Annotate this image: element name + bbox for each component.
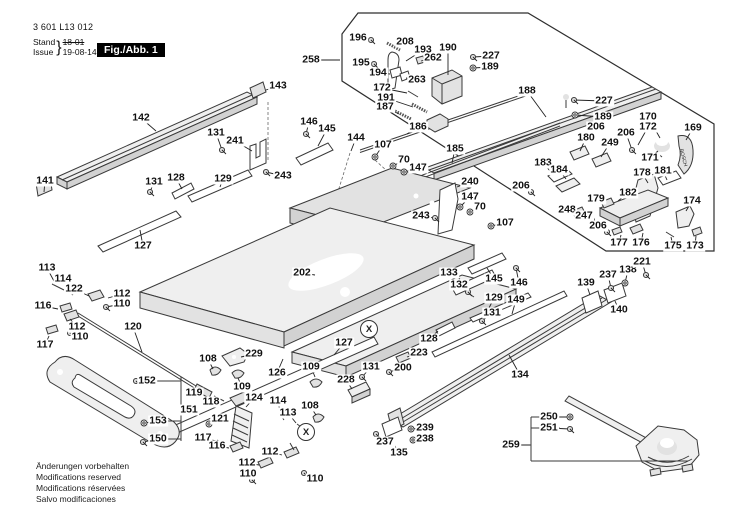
- part-label-146: 146: [299, 116, 319, 127]
- part-label-262: 262: [423, 52, 443, 63]
- part-label-116: 116: [34, 300, 53, 311]
- part-label-131: 131: [482, 307, 502, 318]
- revision-new-value: 19-08-14: [63, 48, 97, 58]
- part-label-202: 202: [292, 267, 312, 278]
- part-label-179: 179: [586, 193, 606, 204]
- part-label-206: 206: [511, 180, 531, 191]
- part-label-200: 200: [393, 362, 413, 373]
- part-label-108: 108: [198, 353, 218, 364]
- part-label-186: 186: [408, 121, 428, 132]
- part-label-120: 120: [123, 321, 143, 332]
- part-label-173: 173: [685, 240, 705, 251]
- part-label-259: 259: [501, 439, 521, 450]
- part-label-146: 146: [509, 277, 529, 288]
- part-label-124: 124: [244, 392, 264, 403]
- part-label-129: 129: [213, 173, 233, 184]
- part-label-238: 238: [415, 433, 435, 444]
- part-label-110: 110: [306, 473, 325, 484]
- part-label-110: 110: [113, 298, 132, 309]
- connector-x-symbol: X: [297, 423, 315, 441]
- part-label-118: 118: [202, 396, 221, 407]
- part-label-142: 142: [131, 112, 151, 123]
- legal-line-es: Salvo modificaciones: [36, 494, 129, 505]
- part-label-128: 128: [166, 172, 186, 183]
- part-label-194: 194: [368, 67, 388, 78]
- part-label-169: 169: [683, 122, 703, 133]
- part-label-258: 258: [301, 54, 321, 65]
- part-label-152: 152: [137, 375, 157, 386]
- part-label-144: 144: [346, 132, 366, 143]
- title-block: 3 601 L13 012 Stand Issue } 18-01 19-08-…: [33, 22, 97, 58]
- part-label-178: 178: [632, 167, 652, 178]
- part-label-240: 240: [460, 176, 480, 187]
- part-label-122: 122: [64, 283, 84, 294]
- revision-label-en: Issue: [33, 48, 55, 58]
- figure-badge: Fig./Abb. 1: [97, 43, 165, 57]
- part-label-223: 223: [409, 347, 429, 358]
- part-label-150: 150: [148, 433, 168, 444]
- part-label-140: 140: [609, 304, 629, 315]
- connector-x-symbol: X: [360, 320, 378, 338]
- part-label-135: 135: [389, 447, 409, 458]
- legal-line-de: Änderungen vorbehalten: [36, 461, 129, 472]
- part-label-153: 153: [148, 415, 168, 426]
- legal-line-en: Modifications reserved: [36, 472, 129, 483]
- part-label-249: 249: [600, 137, 620, 148]
- part-label-131: 131: [206, 127, 226, 138]
- revision-brace: }: [56, 39, 61, 57]
- legal-notice: Änderungen vorbehalten Modifications res…: [36, 461, 129, 505]
- part-label-139: 139: [576, 277, 596, 288]
- part-label-116: 116: [208, 440, 227, 451]
- part-label-243: 243: [411, 210, 431, 221]
- part-label-147: 147: [408, 162, 428, 173]
- part-label-117: 117: [36, 339, 55, 350]
- part-label-131: 131: [361, 361, 381, 372]
- part-label-251: 251: [539, 422, 559, 433]
- part-label-263: 263: [407, 74, 427, 85]
- part-label-206: 206: [616, 127, 636, 138]
- part-label-127: 127: [133, 240, 153, 251]
- revision-block: Stand Issue } 18-01 19-08-14: [33, 38, 97, 58]
- part-label-229: 229: [244, 348, 264, 359]
- part-label-127: 127: [334, 337, 354, 348]
- document-number: 3 601 L13 012: [33, 22, 97, 32]
- part-label-70: 70: [473, 201, 487, 212]
- part-label-151: 151: [179, 404, 199, 415]
- part-label-237: 237: [598, 269, 618, 280]
- part-label-129: 129: [484, 292, 504, 303]
- part-label-182: 182: [618, 187, 638, 198]
- part-label-134: 134: [510, 369, 530, 380]
- part-label-110: 110: [239, 468, 258, 479]
- part-label-184: 184: [549, 164, 569, 175]
- part-label-109: 109: [301, 361, 321, 372]
- part-label-172: 172: [638, 121, 658, 132]
- part-label-113: 113: [279, 407, 298, 418]
- part-label-189: 189: [480, 61, 500, 72]
- part-label-208: 208: [395, 36, 415, 47]
- part-label-221: 221: [632, 256, 652, 267]
- part-label-112: 112: [261, 446, 280, 457]
- part-label-114: 114: [269, 395, 288, 406]
- part-label-131: 131: [144, 176, 164, 187]
- part-label-107: 107: [495, 217, 515, 228]
- part-label-239: 239: [415, 422, 435, 433]
- part-label-188: 188: [517, 85, 537, 96]
- part-label-171: 171: [640, 152, 660, 163]
- part-label-175: 175: [663, 240, 683, 251]
- part-label-174: 174: [682, 195, 702, 206]
- part-label-206: 206: [588, 220, 608, 231]
- part-label-126: 126: [267, 367, 287, 378]
- part-label-177: 177: [609, 237, 629, 248]
- part-label-196: 196: [348, 32, 368, 43]
- legal-line-fr: Modifications réservées: [36, 483, 129, 494]
- part-label-133: 133: [439, 267, 459, 278]
- part-label-132: 132: [449, 279, 469, 290]
- part-label-107: 107: [373, 139, 393, 150]
- part-label-110: 110: [71, 331, 90, 342]
- part-label-228: 228: [336, 374, 356, 385]
- part-label-227: 227: [594, 95, 614, 106]
- part-label-185: 185: [445, 143, 465, 154]
- part-label-149: 149: [506, 294, 526, 305]
- part-label-141: 141: [35, 175, 55, 186]
- parts-diagram-page: BOSCH 3 601 L13 012 Stand Issue } 18-01 …: [0, 0, 750, 530]
- part-label-145: 145: [484, 273, 504, 284]
- part-label-180: 180: [576, 132, 596, 143]
- part-label-145: 145: [317, 123, 337, 134]
- part-label-241: 241: [225, 135, 245, 146]
- part-label-176: 176: [631, 237, 651, 248]
- part-label-243: 243: [273, 170, 293, 181]
- part-label-108: 108: [300, 400, 320, 411]
- part-label-143: 143: [268, 80, 288, 91]
- part-label-181: 181: [653, 165, 673, 176]
- part-label-128: 128: [419, 333, 439, 344]
- part-label-121: 121: [210, 413, 230, 424]
- part-label-187: 187: [375, 101, 395, 112]
